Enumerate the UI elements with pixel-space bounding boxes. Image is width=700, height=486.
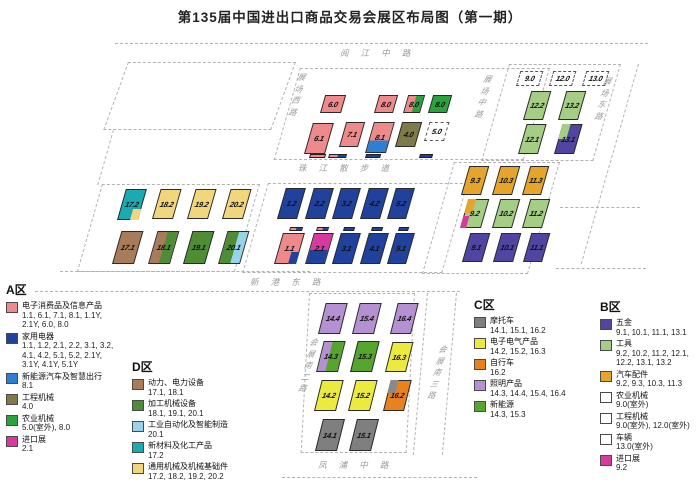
legend-text: 新能源汽车及智慧出行8.1 xyxy=(22,372,102,391)
legend-halls: 17.1, 18.1 xyxy=(148,388,204,398)
legend-category: 自行车 xyxy=(490,358,514,368)
hall-label: 15.3 xyxy=(357,352,373,361)
legend-swatch xyxy=(600,392,612,403)
legend-category: 工业自动化及智能制造 xyxy=(148,420,228,430)
hall-label: 4.2 xyxy=(368,199,380,208)
legend-text: 照明产品14.3, 14.4, 15.4, 16.4 xyxy=(490,379,566,398)
legend-item: 加工机械设备18.1, 19.1, 20.1 xyxy=(132,399,292,418)
hall-label: 8.1 xyxy=(374,133,386,142)
legend-halls: 14.3, 15.3 xyxy=(490,410,526,420)
legend-text: 工程机械4.0 xyxy=(22,393,54,412)
hall-label: 10.2 xyxy=(498,209,514,218)
hall-label: 14.2 xyxy=(321,391,337,400)
hall-label: 12.1 xyxy=(524,135,540,144)
legend-item: 工业自动化及智能制造20.1 xyxy=(132,420,292,439)
legend-item: 工程机械4.0 xyxy=(6,393,131,412)
hall-label: 20.2 xyxy=(229,200,245,209)
legend-title: B区 xyxy=(600,298,700,315)
legend-item: 新能源汽车及智慧出行8.1 xyxy=(6,372,131,391)
hall-label: 14.4 xyxy=(325,314,341,323)
road-line xyxy=(560,207,640,208)
hall-label: 18.2 xyxy=(159,200,175,209)
road-line xyxy=(60,271,310,272)
hall-label: 8.0 xyxy=(380,100,392,109)
road-label: 会展南三路 xyxy=(426,344,448,402)
legend-halls: 9.2 xyxy=(616,463,640,473)
hall-label: 15.2 xyxy=(355,391,371,400)
road-label: 凤 浦 中 路 xyxy=(318,459,393,471)
legend-halls: 9.0(室外) xyxy=(616,400,648,410)
legend-swatch xyxy=(474,338,486,349)
legend-swatch xyxy=(132,463,144,474)
annex-bar xyxy=(289,227,303,231)
legend-item: 动力、电力设备17.1, 18.1 xyxy=(132,378,292,397)
legend-swatch xyxy=(6,394,18,405)
legend-swatch xyxy=(6,436,18,447)
legend-halls: 9.2, 9.3, 10.3, 11.3 xyxy=(616,379,682,389)
hall-label: 12.0 xyxy=(555,74,571,83)
legend-category: 汽车配件 xyxy=(616,370,682,380)
legend-text: 新材料及化工产品17.2 xyxy=(148,441,212,460)
map-canvas: 6.08.08.08.06.17.18.14.05.09.012.013.012… xyxy=(0,0,700,486)
road-line xyxy=(442,293,457,455)
legend-B: B区五金9.1, 10.1, 11.1, 13.1工具9.2, 10.2, 11… xyxy=(600,298,700,475)
legend-swatch xyxy=(132,442,144,453)
legend-halls: 13.0(室外) xyxy=(616,442,653,452)
legend-halls: 2.1 xyxy=(22,444,46,454)
legend-halls: 9.1, 10.1, 11.1, 13.1 xyxy=(616,328,687,338)
legend-text: 电子电气产品14.2, 15.2, 16.3 xyxy=(490,337,546,356)
legend-swatch xyxy=(6,415,18,426)
hall-label: 12.2 xyxy=(529,101,545,110)
hall-label: 17.2 xyxy=(124,200,140,209)
legend-swatch xyxy=(132,379,144,390)
legend-category: 家用电器 xyxy=(22,332,113,342)
legend-item: 农业机械5.0(室外), 8.0 xyxy=(6,414,131,433)
legend-halls: 20.1 xyxy=(148,430,228,440)
hall-label: 13.0 xyxy=(588,74,604,83)
legend-text: 新能源14.3, 15.3 xyxy=(490,400,526,419)
road-label: 珠 江 散 步 道 xyxy=(298,162,394,174)
annex-bar xyxy=(316,227,329,231)
hall-label: 11.2 xyxy=(528,209,543,218)
legend-swatch xyxy=(600,434,612,445)
hall-label: 16.3 xyxy=(391,353,407,362)
legend-swatch xyxy=(600,371,612,382)
legend-item: 车辆13.0(室外) xyxy=(600,433,700,452)
legend-category: 通用机械及机械基础件 xyxy=(148,462,228,472)
legend-text: 进口展9.2 xyxy=(616,454,640,473)
legend-A: A区电子消费品及信息产品1.1, 6.1, 7.1, 8.1, 1.1Y, 2.… xyxy=(6,281,131,456)
legend-item: 照明产品14.3, 14.4, 15.4, 16.4 xyxy=(474,379,599,398)
legend-swatch xyxy=(132,400,144,411)
legend-title: D区 xyxy=(132,358,292,375)
legend-item: 电子电气产品14.2, 15.2, 16.3 xyxy=(474,337,599,356)
legend-category: 车辆 xyxy=(616,433,653,443)
legend-halls: 9.0(室外), 12.0(室外) xyxy=(616,421,690,431)
legend-text: 五金9.1, 10.1, 11.1, 13.1 xyxy=(616,318,687,337)
hall-label: 10.1 xyxy=(499,243,515,252)
road-line xyxy=(282,477,477,478)
legend-text: 进口展2.1 xyxy=(22,435,46,454)
hall-label: 6.1 xyxy=(313,134,325,143)
legend-category: 动力、电力设备 xyxy=(148,378,204,388)
legend-swatch xyxy=(600,413,612,424)
legend-category: 工程机械 xyxy=(22,393,54,403)
legend-swatch xyxy=(6,302,18,313)
legend-category: 加工机械设备 xyxy=(148,399,204,409)
hall-label: 9.1 xyxy=(470,243,482,252)
road-label: 阅 江 中 路 xyxy=(340,47,415,59)
legend-text: 家用电器1.1, 1.2, 2.1, 2.2, 3.1, 3.2, 4.1, 4… xyxy=(22,332,113,370)
hall-label: 1.2 xyxy=(285,199,297,208)
legend-text: 农业机械5.0(室外), 8.0 xyxy=(22,414,70,433)
annex-bar xyxy=(419,154,433,158)
legend-item: 五金9.1, 10.1, 11.1, 13.1 xyxy=(600,318,700,337)
hall-label: 4.1 xyxy=(368,244,380,253)
legend-halls: 14.1, 15.1, 16.2 xyxy=(490,326,546,336)
hall-label: 19.2 xyxy=(194,200,210,209)
hall-label: 17.1 xyxy=(120,243,136,252)
hall-label: 5.0 xyxy=(431,127,443,136)
legend-swatch xyxy=(6,373,18,384)
legend-category: 新能源 xyxy=(490,400,526,410)
legend-D: D区动力、电力设备17.1, 18.1加工机械设备18.1, 19.1, 20.… xyxy=(132,358,292,483)
annex-bar xyxy=(309,154,326,158)
legend-text: 工具9.2, 10.2, 11.2, 12.1, 12.2, 13.1, 13.… xyxy=(616,339,689,368)
legend-text: 车辆13.0(室外) xyxy=(616,433,653,452)
legend-category: 照明产品 xyxy=(490,379,566,389)
legend-halls: 17.2 xyxy=(148,451,212,461)
hall-label: 11.3 xyxy=(528,176,543,185)
legend-category: 摩托车 xyxy=(490,316,546,326)
legend-item: 工具9.2, 10.2, 11.2, 12.1, 12.2, 13.1, 13.… xyxy=(600,339,700,368)
legend-halls: 1.1, 6.1, 7.1, 8.1, 1.1Y, 2.1Y, 6.0, 8.0 xyxy=(22,311,102,330)
hall-label: 8.0 xyxy=(408,100,420,109)
hall-label: 5.2 xyxy=(395,199,407,208)
legend-swatch xyxy=(474,317,486,328)
annex-bar xyxy=(371,227,383,231)
legend-swatch xyxy=(600,319,612,330)
legend-text: 加工机械设备18.1, 19.1, 20.1 xyxy=(148,399,204,418)
hall-label: 9.3 xyxy=(469,176,481,185)
legend-swatch xyxy=(474,359,486,370)
hall-label: 15.1 xyxy=(356,431,372,440)
hall-label: 14.1 xyxy=(322,431,338,440)
legend-item: 进口展9.2 xyxy=(600,454,700,473)
legend-halls: 18.1, 19.1, 20.1 xyxy=(148,409,204,419)
legend-halls: 16.2 xyxy=(490,368,514,378)
annex-bar xyxy=(343,227,355,231)
hall-label: 4.0 xyxy=(403,130,415,139)
legend-title: A区 xyxy=(6,281,131,298)
annex-bar xyxy=(328,154,347,158)
legend-category: 电子消费品及信息产品 xyxy=(22,301,102,311)
legend-item: 电子消费品及信息产品1.1, 6.1, 7.1, 8.1, 1.1Y, 2.1Y… xyxy=(6,301,131,330)
legend-item: 新材料及化工产品17.2 xyxy=(132,441,292,460)
legend-halls: 1.1, 1.2, 2.1, 2.2, 3.1, 3.2, 4.1, 4.2, … xyxy=(22,341,113,370)
hall-label: 9.0 xyxy=(524,74,536,83)
road-line xyxy=(556,268,646,269)
legend-category: 新材料及化工产品 xyxy=(148,441,212,451)
legend-item: 新能源14.3, 15.3 xyxy=(474,400,599,419)
legend-category: 电子电气产品 xyxy=(490,337,546,347)
legend-item: 摩托车14.1, 15.1, 16.2 xyxy=(474,316,599,335)
hall-label: 3.2 xyxy=(340,199,352,208)
hall-label: 11.1 xyxy=(529,243,544,252)
legend-item: 家用电器1.1, 1.2, 2.1, 2.2, 3.1, 3.2, 4.1, 4… xyxy=(6,332,131,370)
hall-label: 2.2 xyxy=(313,199,325,208)
hall-label: 13.2 xyxy=(564,101,580,110)
block-outline xyxy=(103,62,296,130)
legend-text: 工程机械9.0(室外), 12.0(室外) xyxy=(616,412,690,431)
legend-item: 自行车16.2 xyxy=(474,358,599,377)
hall-9.0: 9.0 xyxy=(516,71,543,86)
legend-text: 电子消费品及信息产品1.1, 6.1, 7.1, 8.1, 1.1Y, 2.1Y… xyxy=(22,301,102,330)
legend-swatch xyxy=(474,401,486,412)
hall-label: 14.3 xyxy=(323,352,339,361)
legend-halls: 17.2, 18.2, 19.2, 20.2 xyxy=(148,472,228,482)
legend-halls: 5.0(室外), 8.0 xyxy=(22,423,70,433)
hall-label: 5.1 xyxy=(395,244,407,253)
legend-item: 汽车配件9.2, 9.3, 10.3, 11.3 xyxy=(600,370,700,389)
legend-text: 通用机械及机械基础件17.2, 18.2, 19.2, 20.2 xyxy=(148,462,228,481)
legend-swatch xyxy=(600,455,612,466)
legend-swatch xyxy=(474,380,486,391)
hall-label: 13.1 xyxy=(560,135,576,144)
legend-halls: 14.2, 15.2, 16.3 xyxy=(490,347,546,357)
legend-halls: 9.2, 10.2, 11.2, 12.1, 12.2, 13.1, 13.2 xyxy=(616,349,689,368)
hall-label: 16.2 xyxy=(390,391,406,400)
legend-item: 进口展2.1 xyxy=(6,435,131,454)
legend-item: 工程机械9.0(室外), 12.0(室外) xyxy=(600,412,700,431)
hall-label: 15.4 xyxy=(359,314,375,323)
legend-category: 进口展 xyxy=(22,435,46,445)
legend-halls: 14.3, 14.4, 15.4, 16.4 xyxy=(490,389,566,399)
legend-text: 汽车配件9.2, 9.3, 10.3, 11.3 xyxy=(616,370,682,389)
legend-category: 新能源汽车及智慧出行 xyxy=(22,372,102,382)
legend-category: 工具 xyxy=(616,339,689,349)
legend-swatch xyxy=(132,421,144,432)
legend-C: C区摩托车14.1, 15.1, 16.2电子电气产品14.2, 15.2, 1… xyxy=(474,296,599,421)
legend-swatch xyxy=(600,340,612,351)
hall-label: 6.0 xyxy=(327,100,339,109)
legend-halls: 4.0 xyxy=(22,402,54,412)
road-label: 新 港 东 路 xyxy=(250,276,325,288)
hall-label: 9.2 xyxy=(469,209,481,218)
legend-category: 工程机械 xyxy=(616,412,690,422)
legend-swatch xyxy=(6,333,18,344)
hall-label: 8.0 xyxy=(434,100,446,109)
legend-text: 工业自动化及智能制造20.1 xyxy=(148,420,228,439)
legend-item: 通用机械及机械基础件17.2, 18.2, 19.2, 20.2 xyxy=(132,462,292,481)
legend-text: 自行车16.2 xyxy=(490,358,514,377)
hall-label: 16.4 xyxy=(397,314,413,323)
hall-label: 20.1 xyxy=(226,243,242,252)
legend-text: 动力、电力设备17.1, 18.1 xyxy=(148,378,204,397)
hall-label: 10.3 xyxy=(498,176,514,185)
annex-bar xyxy=(398,227,409,231)
hall-label: 3.1 xyxy=(340,244,352,253)
hall-12.0: 12.0 xyxy=(549,71,576,86)
legend-halls: 8.1 xyxy=(22,381,102,391)
road-line xyxy=(97,130,114,185)
legend-text: 农业机械9.0(室外) xyxy=(616,391,648,410)
legend-category: 农业机械 xyxy=(616,391,648,401)
hall-label: 2.1 xyxy=(313,244,325,253)
legend-text: 摩托车14.1, 15.1, 16.2 xyxy=(490,316,546,335)
hall-label: 19.1 xyxy=(191,243,207,252)
legend-category: 进口展 xyxy=(616,454,640,464)
legend-item: 农业机械9.0(室外) xyxy=(600,391,700,410)
annex-bar xyxy=(365,154,381,158)
legend-title: C区 xyxy=(474,296,599,313)
hall-label: 7.1 xyxy=(346,130,358,139)
legend-category: 五金 xyxy=(616,318,687,328)
legend-category: 农业机械 xyxy=(22,414,70,424)
road-line xyxy=(115,43,648,44)
hall-label: 18.1 xyxy=(156,243,172,252)
